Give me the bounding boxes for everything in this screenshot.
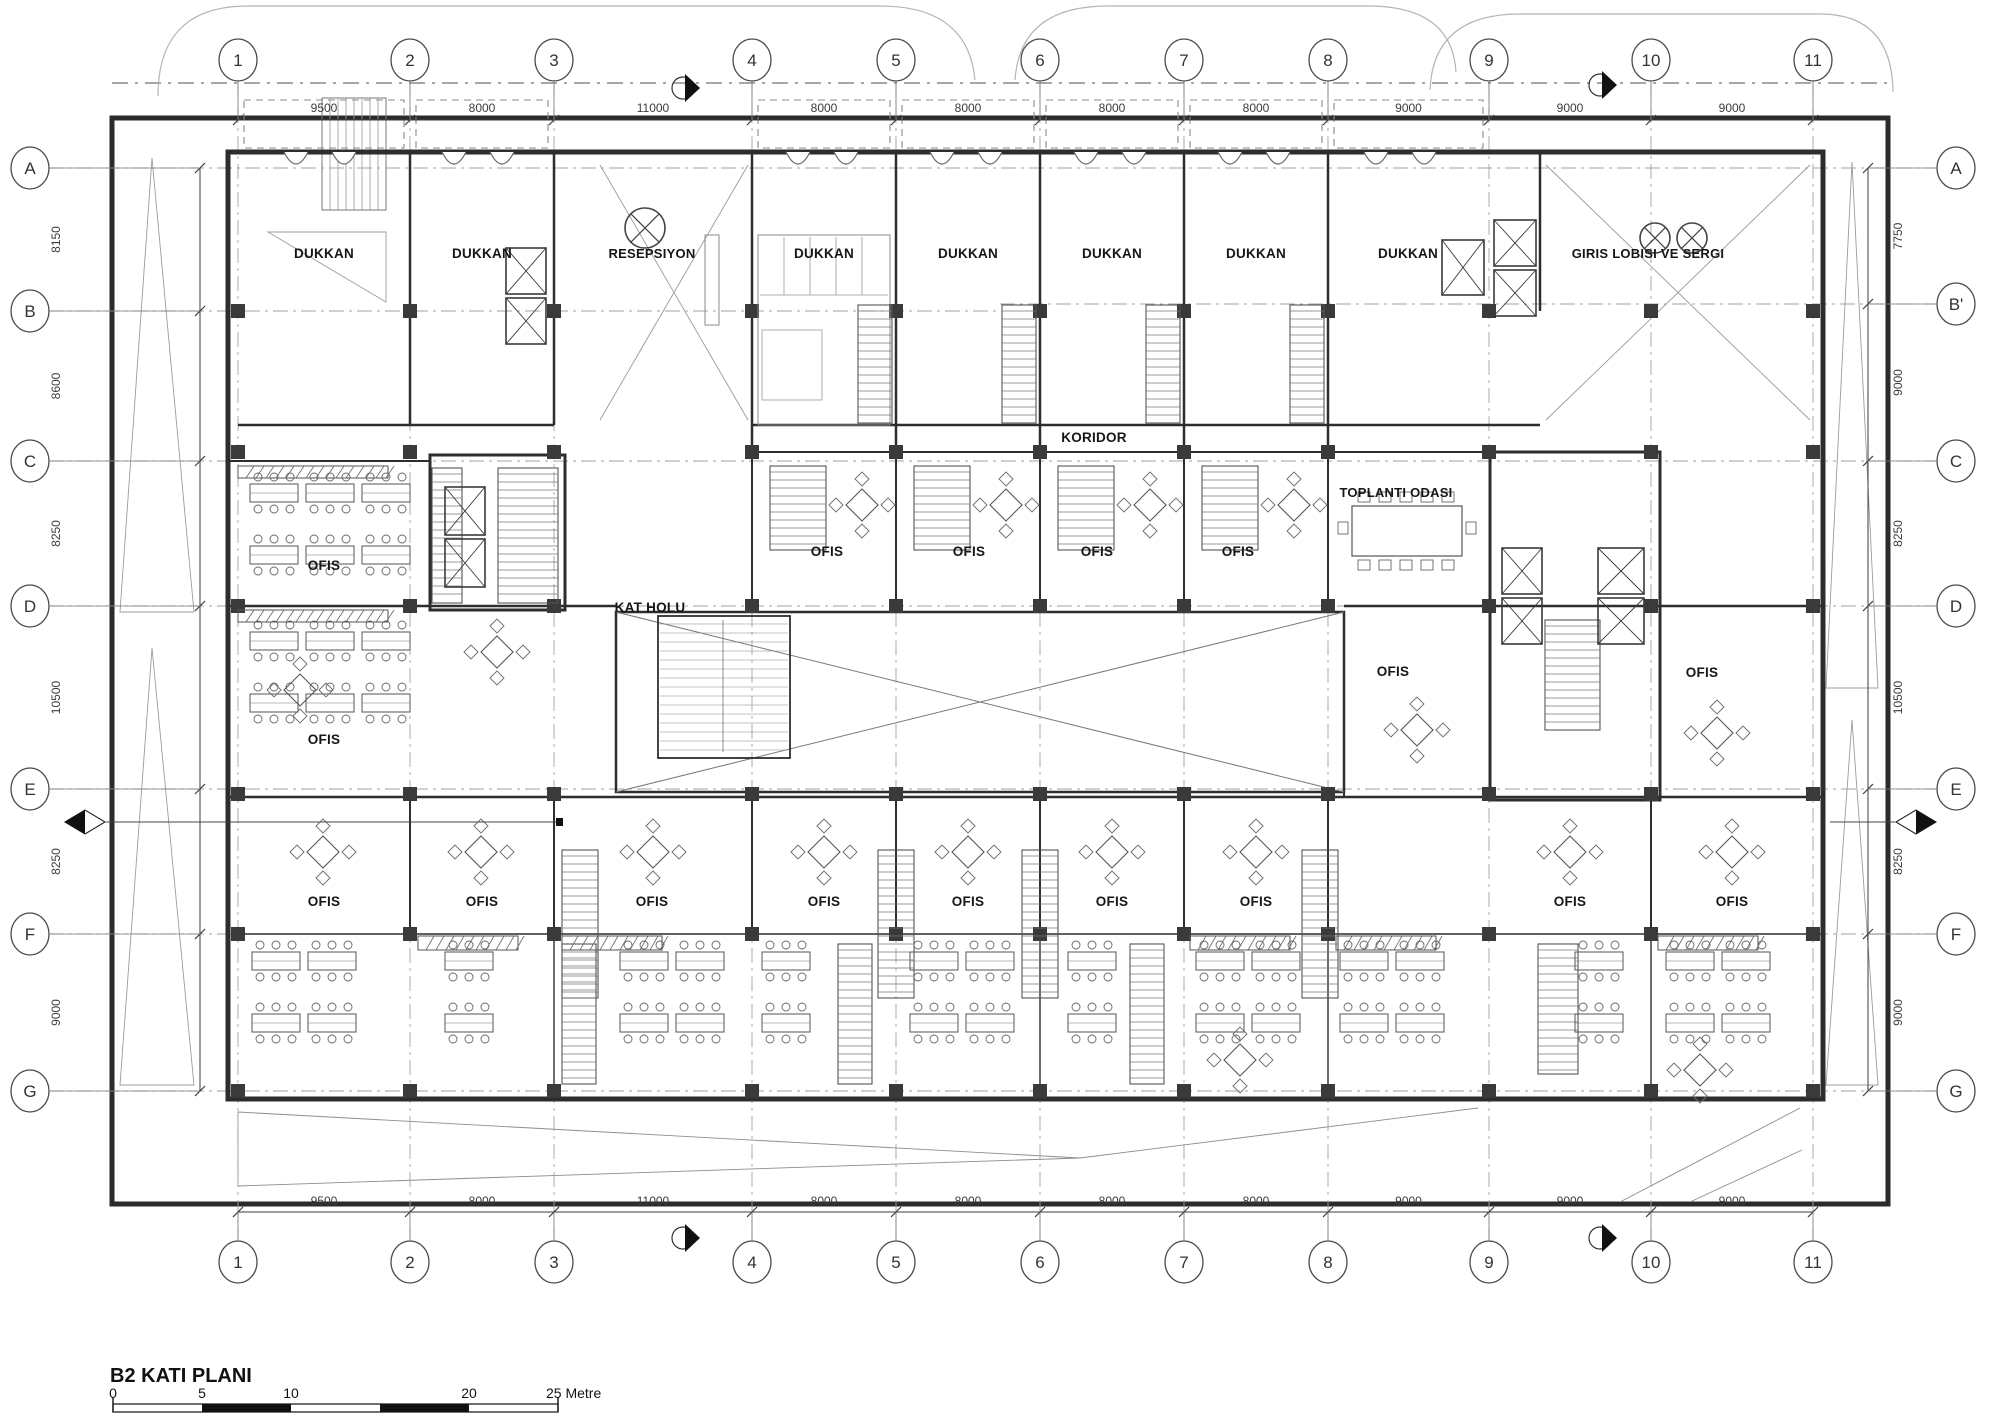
grid-bubble: 8 <box>1309 39 1347 81</box>
dimension-label: 8250 <box>1891 520 1905 547</box>
grid-bubble: G <box>1937 1070 1975 1112</box>
scale-bar-label: 10 <box>283 1385 299 1401</box>
dimension-label: 8150 <box>49 226 63 253</box>
grid-bubble-label: 9 <box>1484 51 1493 70</box>
stairs-icon <box>1538 944 1578 1074</box>
dimension-label: 9000 <box>1557 1194 1584 1208</box>
grid-bubble-label: 4 <box>747 51 756 70</box>
elevator-icon <box>1442 240 1484 295</box>
desk-cluster <box>250 621 410 723</box>
grid-bubble: F <box>1937 913 1975 955</box>
room-label: DUKKAN <box>1226 246 1286 261</box>
grid-bubble: E <box>1937 768 1975 810</box>
room-label: OFIS <box>811 544 844 559</box>
meeting-table-icon <box>620 819 686 885</box>
dimension-label: 9000 <box>1719 101 1746 115</box>
scale-bar-label: 5 <box>198 1385 206 1401</box>
elevator-icon <box>445 539 485 587</box>
cabinet-hatch <box>1190 936 1296 950</box>
grid-bubble-label: 6 <box>1035 51 1044 70</box>
grid-bubble-label: 11 <box>1804 1253 1822 1272</box>
grid-bubble-label: D <box>24 597 36 616</box>
room-label: OFIS <box>308 894 341 909</box>
room-label: OFIS <box>1686 665 1719 680</box>
room-label: DUKKAN <box>938 246 998 261</box>
room-label: OFIS <box>808 894 841 909</box>
grid-bubble: 9 <box>1470 1241 1508 1283</box>
dimension-label: 8250 <box>49 520 63 547</box>
dimension-label: 9000 <box>49 999 63 1026</box>
grid-bubble-label: D <box>1950 597 1962 616</box>
room-label: OFIS <box>1096 894 1129 909</box>
grid-bubble-label: G <box>23 1082 36 1101</box>
grid-bubble: E <box>11 768 49 810</box>
scale-bar-label: 0 <box>109 1385 117 1401</box>
grid-bubble: 2 <box>391 39 429 81</box>
grid-bubbles-layer: 11223344556677889910101111ABCDEFGAB'CDEF… <box>11 39 1975 1283</box>
desk-cluster <box>445 941 493 1043</box>
grid-bubble: D <box>11 585 49 627</box>
grid-bubble-label: B' <box>1949 295 1964 314</box>
scale-bar: 05102025 Metre <box>109 1385 601 1412</box>
room-label: TOPLANTI ODASI <box>1339 485 1452 500</box>
room-label: OFIS <box>308 558 341 573</box>
scale-bar-label: 25 Metre <box>546 1385 601 1401</box>
meeting-table-icon <box>1223 819 1289 885</box>
grid-bubble: 1 <box>219 1241 257 1283</box>
grid-bubble-label: C <box>1950 452 1962 471</box>
grid-bubble-label: 2 <box>405 51 414 70</box>
meeting-table-icon <box>1384 697 1450 763</box>
grid-bubble-label: 10 <box>1642 1253 1661 1272</box>
grid-bubble-label: 11 <box>1804 51 1822 70</box>
dimension-label: 9000 <box>1395 1194 1422 1208</box>
section-marker-icon <box>672 74 700 102</box>
floor-plan-drawing: DUKKANDUKKANRESEPSIYONDUKKANDUKKANDUKKAN… <box>0 0 2000 1420</box>
grid-bubble-label: 2 <box>405 1253 414 1272</box>
room-label: OFIS <box>636 894 669 909</box>
room-label: OFIS <box>466 894 499 909</box>
dimension-label: 8600 <box>49 372 63 399</box>
elevator-icon <box>506 298 546 344</box>
conference-table-icon <box>1338 492 1476 570</box>
grid-bubble-label: 4 <box>747 1253 756 1272</box>
grid-bubble-label: F <box>1951 925 1961 944</box>
grid-bubble-label: 9 <box>1484 1253 1493 1272</box>
elevator-icon <box>506 248 546 294</box>
grid-bubble: 7 <box>1165 1241 1203 1283</box>
grid-bubble: 8 <box>1309 1241 1347 1283</box>
grid-bubble: 6 <box>1021 1241 1059 1283</box>
room-label: OFIS <box>1240 894 1273 909</box>
dimension-label: 8000 <box>469 1194 496 1208</box>
stairs-icon <box>914 466 970 550</box>
meeting-table-icon <box>791 819 857 885</box>
grid-bubble-label: 1 <box>233 51 242 70</box>
grid-bubble: C <box>11 440 49 482</box>
desk-cluster <box>762 941 810 1043</box>
meeting-table-icon <box>1117 472 1183 538</box>
dimension-label: 9000 <box>1719 1194 1746 1208</box>
meeting-table-icon <box>464 619 530 685</box>
room-label: OFIS <box>1081 544 1114 559</box>
dimension-label: 9000 <box>1395 101 1422 115</box>
meeting-table-icon <box>1261 472 1327 538</box>
match-line-icon <box>65 810 105 834</box>
grid-bubble: 11 <box>1794 1241 1832 1283</box>
room-label: OFIS <box>1716 894 1749 909</box>
room-label: DUKKAN <box>294 246 354 261</box>
dimension-label: 9000 <box>1557 101 1584 115</box>
stairs-icon <box>838 944 872 1084</box>
meeting-table-icon <box>1667 1037 1733 1103</box>
dimension-label: 10500 <box>1891 680 1905 714</box>
desk-cluster <box>1196 941 1300 1043</box>
elevator-icon <box>1598 548 1644 594</box>
scale-bar-label: 20 <box>461 1385 477 1401</box>
desk-cluster <box>252 941 356 1043</box>
dimension-label: 11000 <box>637 101 670 115</box>
walls-layer <box>228 152 1823 1099</box>
grid-bubble: B' <box>1937 283 1975 325</box>
room-label: RESEPSIYON <box>608 246 695 261</box>
grid-bubble-label: 8 <box>1323 1253 1332 1272</box>
grid-bubble: 5 <box>877 39 915 81</box>
cabinet-hatch <box>418 936 524 950</box>
desk-cluster <box>1340 941 1444 1043</box>
stairs-icon <box>1302 850 1338 998</box>
grid-bubble-label: 5 <box>891 1253 900 1272</box>
stairs-icon <box>1545 620 1600 730</box>
stairs-icon <box>562 850 598 998</box>
elevator-icon <box>445 487 485 535</box>
grid-bubble-label: A <box>24 159 36 178</box>
elevator-icon <box>1494 270 1536 316</box>
dimension-label: 10500 <box>49 680 63 714</box>
section-marker-icon <box>1589 71 1617 99</box>
dimension-label: 8000 <box>811 101 838 115</box>
meeting-table-icon <box>1684 700 1750 766</box>
meeting-table-icon <box>1079 819 1145 885</box>
dimension-label: 9500 <box>311 1194 338 1208</box>
grid-bubble-label: 7 <box>1179 1253 1188 1272</box>
dimension-label: 8000 <box>1243 101 1270 115</box>
grid-bubble: 4 <box>733 1241 771 1283</box>
grid-bubble-label: F <box>25 925 35 944</box>
cabinet-hatch <box>238 466 394 478</box>
stairs-icon <box>498 468 558 603</box>
grid-bubble-label: 7 <box>1179 51 1188 70</box>
grid-bubble-label: E <box>1950 780 1961 799</box>
match-line-icon <box>1896 810 1936 834</box>
grid-bubble-label: G <box>1949 1082 1962 1101</box>
stairs-icon <box>1202 466 1258 550</box>
grid-bubble-label: E <box>24 780 35 799</box>
room-label: OFIS <box>1377 664 1410 679</box>
cabinet-hatch <box>238 610 394 622</box>
section-marker-icon <box>1589 1224 1617 1252</box>
grid-bubble-label: 6 <box>1035 1253 1044 1272</box>
elevator-icon <box>1502 548 1542 594</box>
grid-bubble-label: 3 <box>549 1253 558 1272</box>
grid-bubble: 1 <box>219 39 257 81</box>
grid-bubble-label: B <box>24 302 35 321</box>
grid-bubble-label: A <box>1950 159 1962 178</box>
stairs-icon <box>1130 944 1164 1084</box>
dimension-label: 9000 <box>1891 999 1905 1026</box>
grid-bubble: A <box>1937 147 1975 189</box>
meeting-table-icon <box>829 472 895 538</box>
grid-bubble: 6 <box>1021 39 1059 81</box>
grid-bubble: 3 <box>535 39 573 81</box>
grid-bubble: 10 <box>1632 39 1670 81</box>
dimension-label: 8250 <box>1891 848 1905 875</box>
dimension-label: 8000 <box>955 1194 982 1208</box>
section-marker-icon <box>672 1224 700 1252</box>
grid-bubble-label: 3 <box>549 51 558 70</box>
grid-bubble: F <box>11 913 49 955</box>
desk-cluster <box>620 941 724 1043</box>
dimension-label: 8000 <box>811 1194 838 1208</box>
grid-bubble: 10 <box>1632 1241 1670 1283</box>
stairs-icon <box>1002 305 1036 423</box>
dimension-label: 7750 <box>1891 222 1905 249</box>
room-label: DUKKAN <box>452 246 512 261</box>
dimension-label: 8000 <box>1099 1194 1126 1208</box>
grid-bubble: A <box>11 147 49 189</box>
grid-bubble: B <box>11 290 49 332</box>
room-labels-layer: DUKKANDUKKANRESEPSIYONDUKKANDUKKANDUKKAN… <box>294 246 1748 909</box>
stairs-icon <box>1058 466 1114 550</box>
meeting-table-icon <box>1699 819 1765 885</box>
grid-bubble: D <box>1937 585 1975 627</box>
desk-cluster <box>910 941 1014 1043</box>
grid-bubble: 9 <box>1470 39 1508 81</box>
stairs-icon <box>1146 305 1180 423</box>
stairs-icon <box>858 305 892 423</box>
desk-cluster <box>1666 941 1770 1043</box>
desk-cluster <box>1575 941 1623 1043</box>
meeting-table-icon <box>935 819 1001 885</box>
dimension-label: 9500 <box>311 101 338 115</box>
room-label: OFIS <box>1554 894 1587 909</box>
floor-plan-sheet: DUKKANDUKKANRESEPSIYONDUKKANDUKKANDUKKAN… <box>0 0 2000 1420</box>
grid-bubble-label: 5 <box>891 51 900 70</box>
room-label: OFIS <box>1222 544 1255 559</box>
desk-cluster <box>1068 941 1116 1043</box>
room-label: KORIDOR <box>1061 430 1127 445</box>
dimension-label: 8000 <box>955 101 982 115</box>
stairs-icon <box>1290 305 1324 423</box>
cabinet-hatch <box>562 936 668 950</box>
meeting-table-icon <box>1537 819 1603 885</box>
grid-bubble-label: 8 <box>1323 51 1332 70</box>
furniture-layer <box>238 208 1770 1103</box>
dimension-label: 11000 <box>637 1194 670 1208</box>
grid-bubble: C <box>1937 440 1975 482</box>
grid-bubble-label: C <box>24 452 36 471</box>
dimension-label: 8250 <box>49 848 63 875</box>
room-label: OFIS <box>952 894 985 909</box>
dimensions-layer: 9500800011000800080008000800090009000900… <box>49 101 1905 1217</box>
grid-bubble: 5 <box>877 1241 915 1283</box>
room-label: KAT HOLU <box>615 600 686 615</box>
grid-bubble: 4 <box>733 39 771 81</box>
grid-bubble: G <box>11 1070 49 1112</box>
meeting-table-icon <box>290 819 356 885</box>
room-label: DUKKAN <box>794 246 854 261</box>
grid-bubble: 11 <box>1794 39 1832 81</box>
grid-bubble-label: 10 <box>1642 51 1661 70</box>
meeting-table-icon <box>973 472 1039 538</box>
dimension-label: 8000 <box>469 101 496 115</box>
elevator-icon <box>1494 220 1536 266</box>
room-label: OFIS <box>953 544 986 559</box>
dimension-label: 9000 <box>1891 369 1905 396</box>
room-label: DUKKAN <box>1082 246 1142 261</box>
grid-bubble: 2 <box>391 1241 429 1283</box>
room-label: OFIS <box>308 732 341 747</box>
room-label: GIRIS LOBISI VE SERGI <box>1572 246 1725 261</box>
stairs-icon <box>562 944 596 1084</box>
grid-bubble: 7 <box>1165 39 1203 81</box>
dimension-label: 8000 <box>1243 1194 1270 1208</box>
room-label: DUKKAN <box>1378 246 1438 261</box>
grid-bubble-label: 1 <box>233 1253 242 1272</box>
dimension-label: 8000 <box>1099 101 1126 115</box>
plan-title: B2 KATI PLANI <box>110 1365 252 1387</box>
grid-bubble: 3 <box>535 1241 573 1283</box>
meeting-table-icon <box>448 819 514 885</box>
stairs-icon <box>770 466 826 550</box>
